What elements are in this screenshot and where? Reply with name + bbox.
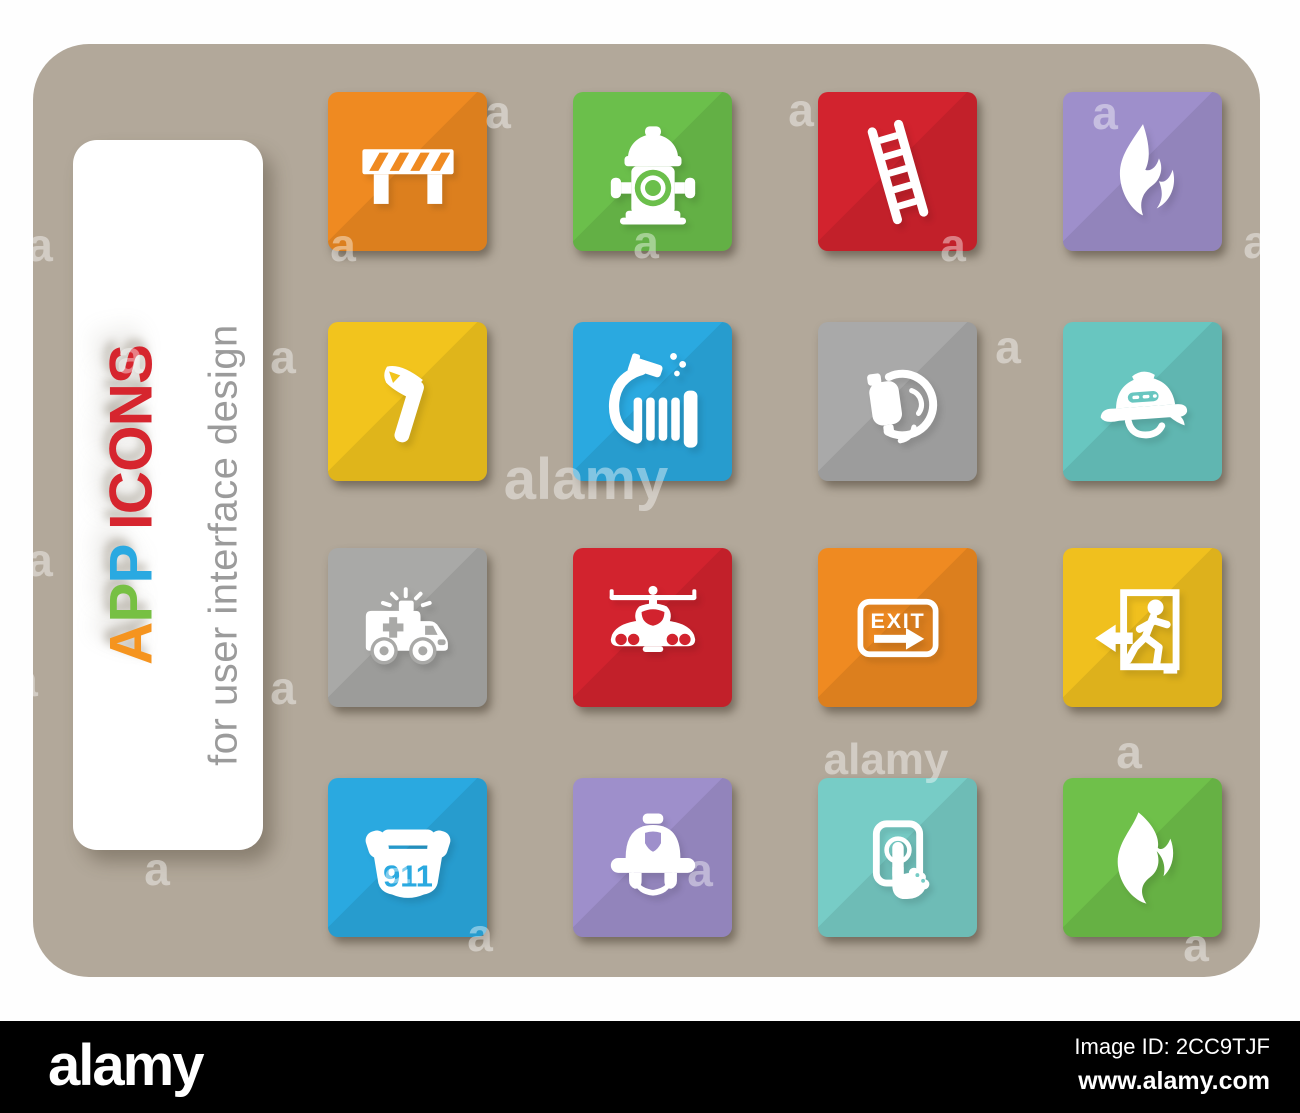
label-card: APP ICONS for user interface design <box>73 140 263 850</box>
title-letter: S <box>98 345 165 384</box>
icon-tile-fire-hose[interactable] <box>573 322 732 481</box>
icon-tile-fire-helmet-front[interactable] <box>573 778 732 937</box>
app-icons-subtitle: for user interface design <box>202 324 247 766</box>
title-letter <box>98 530 165 546</box>
title-letter: I <box>98 514 165 530</box>
icon-tile-road-barrier[interactable] <box>328 92 487 251</box>
icon-tile-ambulance[interactable] <box>328 548 487 707</box>
alarm-button-icon <box>841 801 955 915</box>
phone-911-icon: 911 <box>351 801 465 915</box>
emergency-exit-icon <box>1086 571 1200 685</box>
fire-hydrant-icon <box>596 115 710 229</box>
bonfire-icon <box>1086 801 1200 915</box>
fire-hose-icon <box>596 345 710 459</box>
icon-tile-alarm-button[interactable] <box>818 778 977 937</box>
icon-tile-bonfire[interactable] <box>1063 778 1222 937</box>
fire-helmet-side-icon <box>1086 345 1200 459</box>
icon-tile-fire-hydrant[interactable] <box>573 92 732 251</box>
footer-meta: Image ID: 2CC9TJF www.alamy.com <box>1074 1034 1270 1096</box>
icon-tile-exit-sign[interactable]: EXIT <box>818 548 977 707</box>
title-letter: N <box>98 384 165 426</box>
page: APP ICONS for user interface design EXIT… <box>0 0 1300 1113</box>
svg-text:911: 911 <box>383 858 433 893</box>
icon-tile-emergency-exit[interactable] <box>1063 548 1222 707</box>
title-letter: P <box>98 584 165 623</box>
fire-axe-icon <box>351 345 465 459</box>
flame-icon <box>1086 115 1200 229</box>
icon-tile-fire-helmet-side[interactable] <box>1063 322 1222 481</box>
fire-helicopter-icon <box>596 571 710 685</box>
fire-ladder-icon <box>841 115 955 229</box>
icon-tile-fire-axe[interactable] <box>328 322 487 481</box>
ambulance-icon <box>351 571 465 685</box>
icon-tile-fire-helicopter[interactable] <box>573 548 732 707</box>
road-barrier-icon <box>351 115 465 229</box>
icon-tile-phone-911[interactable]: 911 <box>328 778 487 937</box>
icon-tile-flame[interactable] <box>1063 92 1222 251</box>
svg-text:EXIT: EXIT <box>870 608 925 633</box>
icon-tile-fire-ladder[interactable] <box>818 92 977 251</box>
app-icons-title: APP ICONS <box>97 345 166 665</box>
fire-helmet-front-icon <box>596 801 710 915</box>
title-letter: A <box>98 623 165 665</box>
title-letter: C <box>98 472 165 514</box>
alamy-logo: alamy <box>48 1032 202 1099</box>
image-id-text: Image ID: 2CC9TJF <box>1074 1034 1270 1060</box>
alamy-url-text: www.alamy.com <box>1074 1067 1270 1096</box>
title-letter: P <box>98 546 165 584</box>
breathing-mask-icon <box>841 345 955 459</box>
title-letter: O <box>98 426 165 472</box>
footer-bar: alamy Image ID: 2CC9TJF www.alamy.com <box>0 1021 1300 1113</box>
exit-sign-icon: EXIT <box>841 571 955 685</box>
icon-tile-breathing-mask[interactable] <box>818 322 977 481</box>
